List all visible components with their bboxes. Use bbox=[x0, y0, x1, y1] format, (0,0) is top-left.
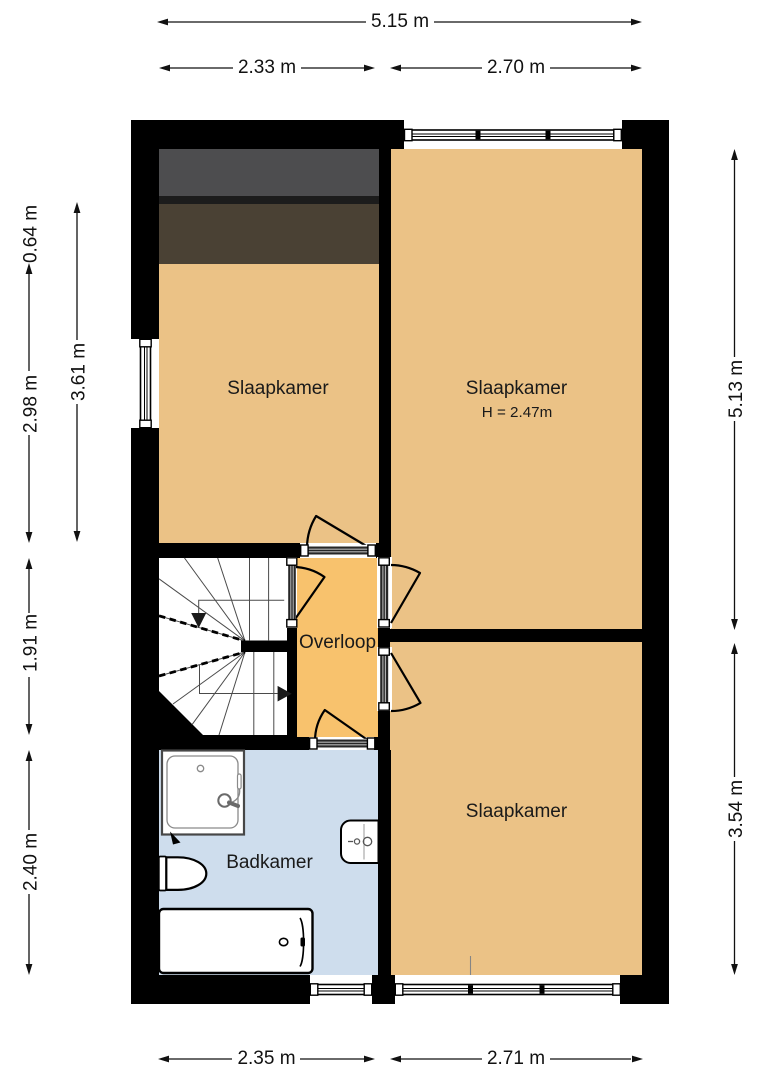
svg-text:Slaapkamer: Slaapkamer bbox=[227, 378, 329, 399]
svg-text:0.64 m: 0.64 m bbox=[20, 205, 41, 263]
svg-text:3.61 m: 3.61 m bbox=[68, 343, 89, 401]
svg-text:H = 2.47m: H = 2.47m bbox=[482, 404, 553, 421]
svg-text:5.13 m: 5.13 m bbox=[726, 360, 747, 418]
svg-text:1.91 m: 1.91 m bbox=[20, 614, 41, 672]
svg-text:2.70 m: 2.70 m bbox=[487, 57, 545, 78]
svg-text:Badkamer: Badkamer bbox=[226, 852, 313, 873]
svg-text:2.71 m: 2.71 m bbox=[487, 1048, 545, 1069]
svg-text:5.15 m: 5.15 m bbox=[371, 11, 429, 32]
svg-text:3.54 m: 3.54 m bbox=[726, 780, 747, 838]
svg-text:2.33 m: 2.33 m bbox=[238, 57, 296, 78]
svg-text:Overloop: Overloop bbox=[299, 632, 376, 653]
svg-text:Slaapkamer: Slaapkamer bbox=[466, 378, 568, 399]
svg-text:2.40 m: 2.40 m bbox=[20, 833, 41, 891]
svg-text:Slaapkamer: Slaapkamer bbox=[466, 801, 568, 822]
svg-text:2.35 m: 2.35 m bbox=[237, 1048, 295, 1069]
svg-text:2.98 m: 2.98 m bbox=[20, 375, 41, 433]
